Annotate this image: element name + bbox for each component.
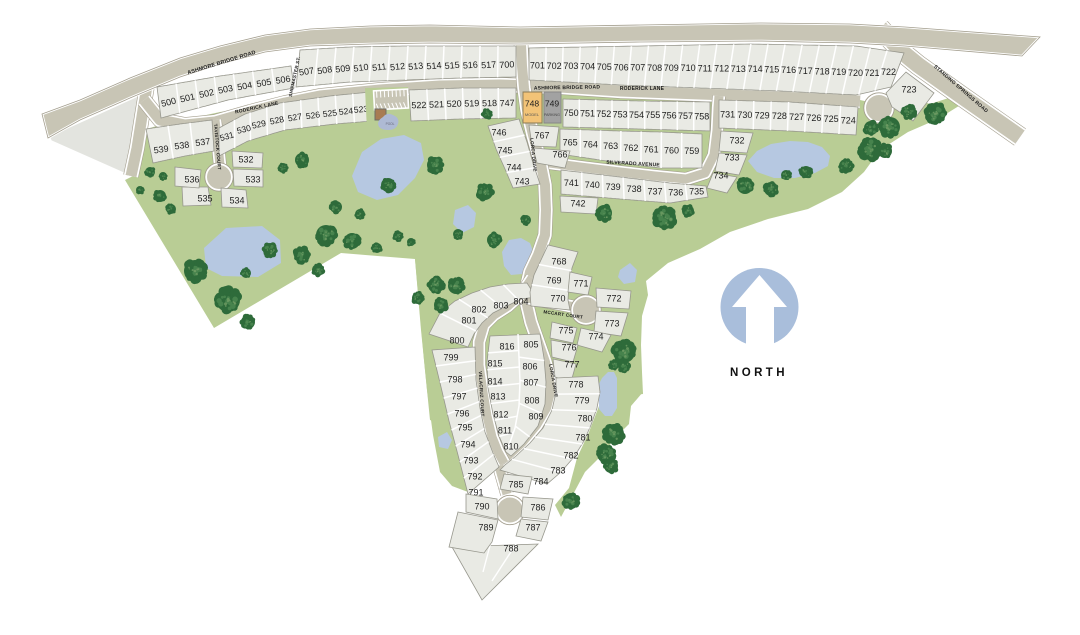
svg-text:755: 755 [645,110,660,120]
svg-text:532: 532 [238,154,253,164]
svg-text:798: 798 [447,374,462,384]
svg-text:748: 748 [525,98,540,108]
svg-text:803: 803 [493,300,508,310]
svg-text:804: 804 [513,296,528,306]
svg-text:519: 519 [464,98,479,109]
svg-text:702: 702 [547,61,562,71]
svg-text:MODEL: MODEL [525,112,540,117]
svg-text:747: 747 [499,98,514,109]
svg-text:797: 797 [451,391,466,401]
svg-text:775: 775 [558,325,573,335]
svg-text:525: 525 [322,107,338,119]
svg-text:736: 736 [668,187,683,197]
svg-text:520: 520 [446,99,461,110]
svg-text:733: 733 [724,152,739,162]
svg-text:703: 703 [563,61,578,71]
svg-text:760: 760 [664,145,679,155]
svg-text:735: 735 [689,187,704,197]
svg-text:752: 752 [596,109,611,119]
svg-text:759: 759 [684,146,699,156]
svg-text:521: 521 [429,99,444,110]
svg-text:522: 522 [411,100,426,111]
svg-text:767: 767 [534,130,549,140]
svg-text:534: 534 [229,195,244,205]
svg-text:706: 706 [614,62,629,72]
svg-text:745: 745 [497,145,512,155]
svg-text:810: 810 [503,441,518,451]
svg-text:779: 779 [574,395,589,405]
svg-text:799: 799 [443,352,458,362]
svg-text:709: 709 [664,63,679,73]
svg-text:801: 801 [461,315,476,325]
svg-text:537: 537 [195,136,211,148]
svg-text:749: 749 [545,98,560,108]
svg-text:792: 792 [467,471,482,481]
svg-text:705: 705 [597,62,612,72]
svg-text:727: 727 [789,112,804,122]
svg-text:780: 780 [577,413,592,423]
svg-text:714: 714 [748,64,763,74]
svg-text:526: 526 [305,109,321,121]
svg-text:750: 750 [564,108,579,118]
svg-text:730: 730 [737,110,752,120]
svg-text:783: 783 [550,465,565,475]
svg-text:762: 762 [623,143,638,153]
svg-text:PARKING: PARKING [544,113,560,117]
svg-text:RODERICK LANE: RODERICK LANE [620,86,665,92]
svg-text:712: 712 [714,64,729,74]
svg-text:790: 790 [474,501,489,511]
svg-text:734: 734 [713,170,728,180]
svg-text:720: 720 [848,68,863,78]
svg-text:729: 729 [755,110,770,120]
svg-text:511: 511 [372,61,387,73]
svg-text:772: 772 [606,293,621,303]
svg-text:744: 744 [506,162,521,172]
svg-text:781: 781 [575,432,590,442]
svg-text:509: 509 [335,63,351,75]
svg-text:758: 758 [694,111,709,121]
svg-text:802: 802 [471,304,486,314]
svg-text:787: 787 [525,522,540,532]
svg-text:514: 514 [426,60,442,71]
svg-text:737: 737 [647,186,662,196]
svg-text:763: 763 [603,141,618,151]
svg-text:700: 700 [499,59,515,70]
svg-text:516: 516 [462,60,478,71]
svg-text:716: 716 [781,65,796,75]
svg-text:718: 718 [815,66,830,76]
svg-text:535: 535 [197,193,212,203]
svg-text:512: 512 [390,61,406,73]
svg-text:536: 536 [184,174,199,184]
svg-text:518: 518 [482,98,497,109]
svg-text:816: 816 [499,341,514,351]
svg-text:782: 782 [563,450,578,460]
svg-text:711: 711 [698,63,712,73]
svg-text:774: 774 [588,331,603,341]
svg-text:813: 813 [490,391,505,401]
svg-text:757: 757 [678,111,693,121]
svg-text:770: 770 [550,293,565,303]
svg-text:751: 751 [580,109,595,119]
svg-text:710: 710 [681,63,696,73]
svg-text:707: 707 [630,63,645,73]
svg-text:754: 754 [629,110,644,120]
svg-text:723: 723 [901,84,916,94]
svg-text:704: 704 [580,62,595,72]
svg-text:701: 701 [530,60,545,70]
svg-text:765: 765 [563,137,578,147]
svg-text:732: 732 [729,135,744,145]
svg-text:746: 746 [491,127,506,137]
svg-text:741: 741 [564,178,579,188]
svg-text:786: 786 [530,502,545,512]
svg-text:753: 753 [613,109,628,119]
svg-text:811: 811 [498,425,512,435]
svg-text:724: 724 [841,115,856,125]
svg-text:756: 756 [662,111,677,121]
svg-text:808: 808 [524,395,539,405]
svg-text:533: 533 [245,174,260,184]
svg-text:814: 814 [487,376,502,386]
svg-text:788: 788 [503,543,518,553]
svg-text:726: 726 [806,113,821,123]
svg-text:793: 793 [463,455,478,465]
svg-text:800: 800 [449,335,464,345]
svg-text:508: 508 [317,64,333,76]
svg-text:784: 784 [533,476,548,486]
svg-text:731: 731 [720,109,735,119]
svg-text:794: 794 [460,439,475,449]
svg-text:815: 815 [487,358,502,368]
svg-text:739: 739 [606,182,621,192]
svg-text:ASHMORE BRIDGE ROAD: ASHMORE BRIDGE ROAD [534,84,601,91]
svg-text:725: 725 [824,114,839,124]
svg-text:778: 778 [568,379,583,389]
svg-text:761: 761 [644,144,659,154]
svg-text:728: 728 [772,111,787,121]
svg-text:743: 743 [514,176,529,186]
svg-text:721: 721 [864,68,879,78]
svg-text:769: 769 [546,275,561,285]
svg-text:789: 789 [478,522,493,532]
svg-text:719: 719 [831,67,846,77]
svg-text:715: 715 [764,65,779,75]
svg-text:POOL: POOL [386,122,395,126]
svg-text:807: 807 [523,377,538,387]
svg-text:515: 515 [444,60,460,71]
svg-text:809: 809 [528,411,543,421]
svg-text:768: 768 [551,256,566,266]
svg-text:777: 777 [564,359,579,369]
svg-text:805: 805 [523,339,538,349]
svg-text:717: 717 [798,66,813,76]
svg-text:766: 766 [552,149,567,159]
svg-text:738: 738 [627,184,642,194]
svg-text:812: 812 [493,409,508,419]
svg-text:713: 713 [731,64,746,74]
svg-text:538: 538 [174,139,190,151]
svg-text:517: 517 [481,59,497,70]
svg-text:776: 776 [561,342,576,352]
svg-text:785: 785 [508,479,523,489]
svg-text:NORTH: NORTH [730,367,788,379]
svg-text:524: 524 [338,106,354,117]
svg-text:722: 722 [881,67,896,77]
svg-text:796: 796 [454,408,469,418]
svg-text:539: 539 [153,143,169,155]
svg-text:764: 764 [583,139,598,149]
svg-text:771: 771 [573,278,588,288]
svg-text:773: 773 [604,318,619,328]
svg-text:742: 742 [570,198,585,208]
svg-text:708: 708 [647,63,662,73]
svg-text:510: 510 [353,62,369,74]
svg-text:513: 513 [408,61,424,72]
svg-text:806: 806 [522,361,537,371]
svg-text:795: 795 [457,422,472,432]
svg-text:740: 740 [585,180,600,190]
